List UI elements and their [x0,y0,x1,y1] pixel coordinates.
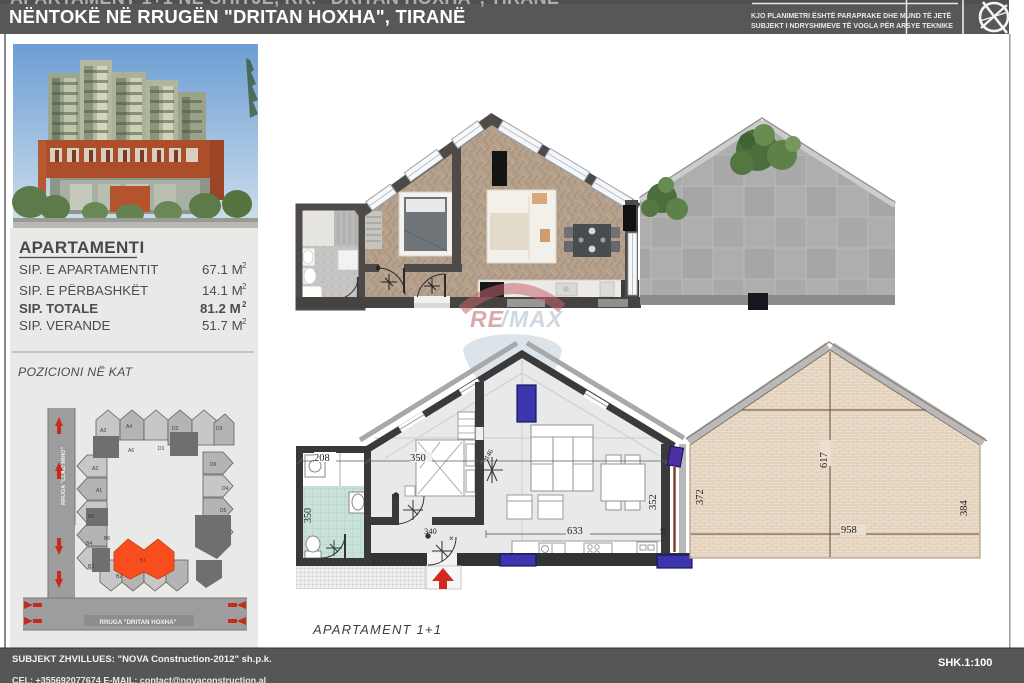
svg-text:D2: D2 [172,426,179,432]
svg-text:NËNTOKË NË RRUGËN "DRITAN HOXH: NËNTOKË NË RRUGËN "DRITAN HOXHA", TIRANË [9,6,466,27]
svg-text:40: 40 [659,528,668,536]
svg-text:APARTAMENTI: APARTAMENTI [19,238,145,257]
svg-text:D4: D4 [222,486,229,492]
svg-text:633: 633 [567,526,583,537]
svg-text:POZICIONI NË KAT: POZICIONI NË KAT [18,365,134,379]
svg-text:B2: B2 [116,574,122,580]
svg-text:D6: D6 [210,462,217,468]
svg-text:SUBJEKT I NDRYSHIMEVE TË VOGLA: SUBJEKT I NDRYSHIMEVE TË VOGLA PËR ARSYE… [751,22,953,30]
svg-text:D3: D3 [216,426,223,432]
svg-text:617: 617 [819,452,830,468]
svg-text:RE: RE [470,306,504,332]
svg-text:SIP. E PËRBASHKËT: SIP. E PËRBASHKËT [19,283,148,298]
svg-text:352: 352 [648,494,659,510]
svg-text:2: 2 [242,282,247,291]
svg-text:340: 340 [424,526,437,536]
svg-text:51.7 M: 51.7 M [202,318,243,333]
svg-text:RRUGA "DRITAN HOXHA": RRUGA "DRITAN HOXHA" [99,619,176,626]
svg-text:B1: B1 [140,558,146,564]
svg-text:MAX: MAX [509,306,564,332]
svg-text:B6: B6 [104,536,110,542]
svg-text:D5: D5 [220,508,227,514]
svg-text:14.1 M: 14.1 M [202,283,243,298]
svg-text:SIP. TOTALE: SIP. TOTALE [19,301,98,316]
svg-text:A1: A1 [96,488,102,494]
svg-text:A6: A6 [128,448,134,454]
svg-text:958: 958 [841,525,857,536]
svg-text:APARTAMENT 1+1: APARTAMENT 1+1 [312,622,442,637]
svg-text:208: 208 [314,453,330,464]
svg-text:A2: A2 [92,466,98,472]
svg-text:SIP. VERANDE: SIP. VERANDE [19,318,111,333]
svg-text:SHK.1:100: SHK.1:100 [938,657,992,669]
svg-text:2: 2 [242,261,247,270]
svg-text:384: 384 [959,500,970,517]
svg-text:B4: B4 [86,541,92,547]
svg-text:KJO PLANIMETRI ËSHTË PARAPRAKE: KJO PLANIMETRI ËSHTË PARAPRAKE DHE MUND … [751,12,951,20]
svg-text:2: 2 [242,300,247,309]
svg-text:372: 372 [695,489,706,505]
svg-text:81.2 M: 81.2 M [200,301,241,316]
svg-text:67.1 M: 67.1 M [202,262,243,277]
svg-text:SIP. E APARTAMENTIT: SIP. E APARTAMENTIT [19,262,158,277]
svg-text:350: 350 [303,508,314,523]
svg-text:A3: A3 [100,428,106,434]
svg-text:B5: B5 [88,514,94,520]
svg-text:×: × [449,534,454,543]
svg-text:A4: A4 [126,424,132,430]
svg-text:350: 350 [410,453,426,464]
svg-text:D1: D1 [158,446,165,452]
svg-text:SUBJEKT ZHVILLUES: "NOVA Const: SUBJEKT ZHVILLUES: "NOVA Construction-20… [12,654,272,665]
svg-text:RRUGA "LLAZI MIHO": RRUGA "LLAZI MIHO" [61,446,67,505]
svg-text:B3: B3 [88,564,94,570]
svg-text:CEL: +355692077674 E-MA: CEL: +355692077674 E-MAIL: contact@novac… [12,676,266,683]
svg-text:2: 2 [242,317,247,326]
